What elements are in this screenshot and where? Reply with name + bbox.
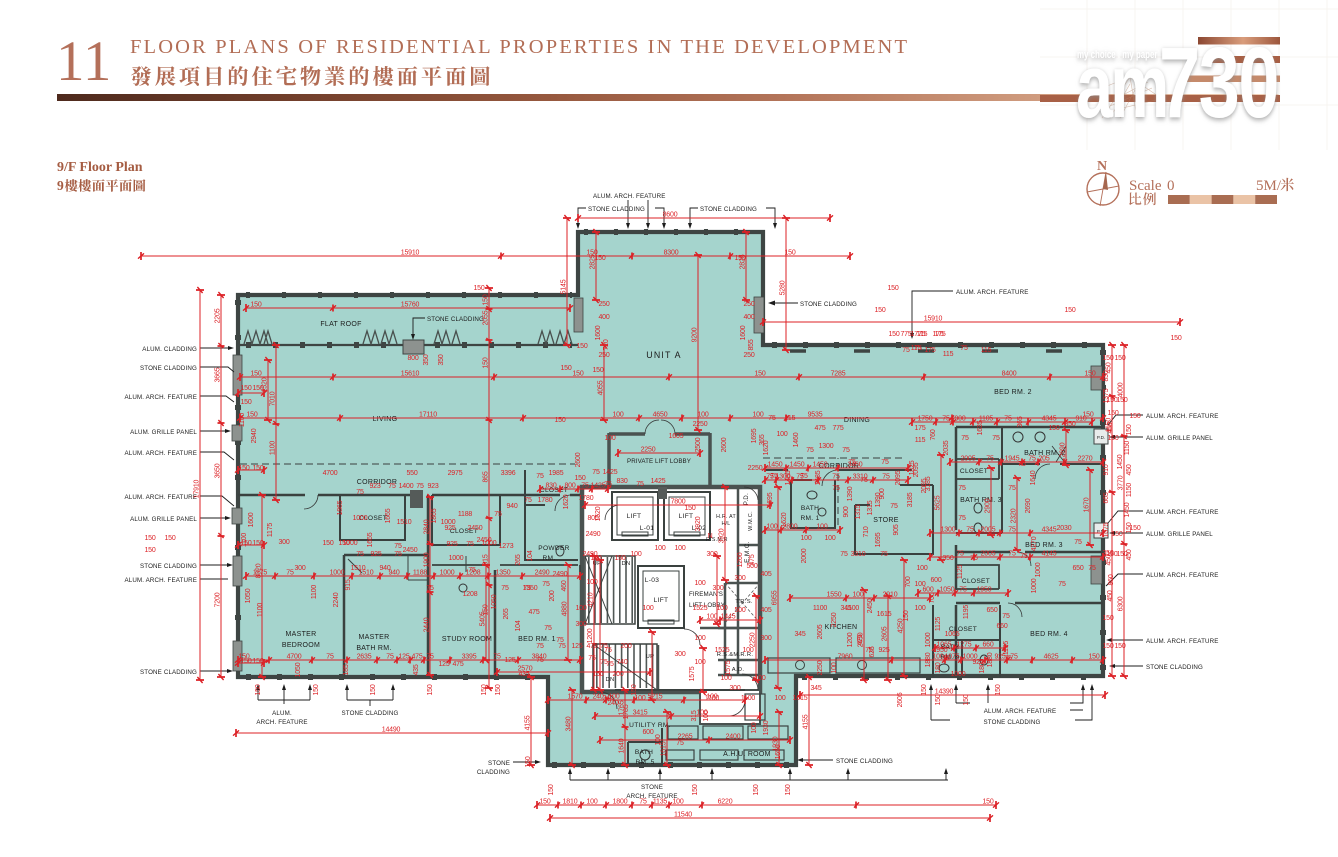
svg-text:LIFT: LIFT [654,597,669,604]
svg-text:75: 75 [581,483,589,490]
svg-text:1300: 1300 [819,443,834,450]
svg-text:150: 150 [784,250,795,257]
svg-text:665: 665 [1103,492,1110,503]
svg-text:100: 100 [642,605,653,612]
svg-text:75: 75 [880,551,888,558]
svg-text:75: 75 [961,435,969,442]
svg-text:150: 150 [1126,424,1133,435]
svg-text:100: 100 [914,581,925,588]
svg-text:ALUM. ARCH. FEATURE: ALUM. ARCH. FEATURE [124,450,197,457]
svg-text:900: 900 [954,416,965,423]
svg-text:150: 150 [370,684,377,695]
svg-text:1200: 1200 [847,632,854,647]
svg-text:2250: 2250 [748,465,763,472]
svg-text:1000: 1000 [441,519,456,526]
svg-text:1510: 1510 [397,519,412,526]
svg-text:75: 75 [882,474,890,481]
svg-text:150: 150 [753,784,760,795]
svg-text:75: 75 [860,477,868,484]
svg-text:1150: 1150 [1126,483,1133,498]
svg-text:5215: 5215 [648,694,663,701]
svg-text:265: 265 [515,554,522,565]
svg-text:450: 450 [1107,590,1114,601]
svg-text:923: 923 [369,483,380,490]
svg-text:BED RM. 2: BED RM. 2 [994,389,1032,396]
svg-text:L-03: L-03 [645,577,659,584]
svg-text:150: 150 [554,417,565,424]
svg-text:W.M.C.: W.M.C. [748,511,754,531]
svg-text:RM.: RM. [543,555,556,562]
svg-text:150: 150 [590,555,601,562]
svg-text:2605: 2605 [897,692,904,707]
svg-text:75: 75 [468,567,476,574]
svg-text:250: 250 [598,301,609,308]
svg-text:100: 100 [612,412,623,419]
svg-text:1525: 1525 [693,605,708,612]
svg-text:1450: 1450 [813,462,828,469]
svg-text:345: 345 [810,685,821,692]
svg-text:475: 475 [749,554,756,565]
svg-text:8400: 8400 [1002,371,1017,378]
svg-text:1065: 1065 [945,631,960,638]
svg-text:865: 865 [483,471,490,482]
svg-text:4700: 4700 [323,470,338,477]
svg-text:1075: 1075 [1103,522,1110,537]
svg-text:1200: 1200 [587,628,594,643]
svg-text:11540: 11540 [674,812,692,819]
svg-text:100: 100 [654,545,665,552]
svg-text:2635: 2635 [357,654,372,661]
svg-text:STONE CLADDING: STONE CLADDING [836,758,893,765]
svg-text:STONE CLADDING: STONE CLADDING [800,301,857,308]
svg-text:900: 900 [843,506,850,517]
svg-text:75: 75 [606,661,614,668]
svg-text:300: 300 [706,551,717,558]
svg-text:450: 450 [1126,464,1133,475]
svg-text:150: 150 [252,385,263,392]
svg-text:100: 100 [694,580,705,587]
svg-text:1188: 1188 [458,511,473,518]
svg-text:350: 350 [942,555,953,562]
svg-text:100: 100 [914,605,925,612]
svg-text:7960: 7960 [838,654,853,661]
svg-text:2005: 2005 [961,456,976,463]
svg-text:75: 75 [416,483,424,490]
svg-text:150: 150 [754,371,765,378]
svg-text:ALUM.: ALUM. [272,710,292,717]
svg-text:150: 150 [525,756,532,767]
svg-text:2690: 2690 [1060,442,1067,457]
svg-text:2975: 2975 [448,470,463,477]
svg-text:1640: 1640 [1030,470,1037,485]
svg-text:150: 150 [935,694,942,705]
svg-text:830: 830 [616,478,627,485]
svg-text:ALUM. GRILLE PANEL: ALUM. GRILLE PANEL [130,516,197,523]
svg-text:ALUM. CLADDING: ALUM. CLADDING [142,346,197,353]
svg-text:P.D.: P.D. [1097,435,1105,440]
svg-text:150: 150 [963,694,970,705]
svg-text:350: 350 [438,354,445,365]
svg-text:925: 925 [972,659,983,666]
svg-text:1100: 1100 [813,605,828,612]
svg-text:2450: 2450 [477,537,492,544]
svg-text:9200: 9200 [692,327,699,342]
svg-text:1865: 1865 [337,500,344,515]
svg-text:75: 75 [958,515,966,522]
svg-text:100: 100 [716,605,727,612]
svg-text:75: 75 [636,481,644,488]
svg-text:75: 75 [1088,565,1096,572]
svg-text:2250: 2250 [831,612,838,627]
svg-text:250: 250 [743,301,754,308]
svg-text:STONE: STONE [488,760,510,767]
svg-text:3310: 3310 [851,551,866,558]
svg-text:150: 150 [1116,551,1127,558]
svg-text:405: 405 [760,571,771,578]
svg-text:1175: 1175 [267,523,274,538]
svg-text:460: 460 [561,580,568,591]
svg-text:75: 75 [832,474,840,481]
svg-text:5405: 5405 [480,611,487,626]
svg-text:923: 923 [427,483,438,490]
svg-text:1300: 1300 [941,527,956,534]
svg-text:150: 150 [631,684,638,695]
svg-text:8320: 8320 [256,563,263,578]
svg-text:475: 475 [452,661,463,668]
svg-text:1275: 1275 [957,642,972,649]
svg-text:1650: 1650 [775,744,782,759]
svg-text:ALUM. ARCH. FEATURE: ALUM. ARCH. FEATURE [1146,413,1219,420]
svg-text:4650: 4650 [653,412,668,419]
svg-text:14490: 14490 [382,727,401,734]
svg-text:75: 75 [958,485,966,492]
svg-text:1485: 1485 [785,470,792,485]
svg-text:100: 100 [655,734,662,745]
svg-text:2490: 2490 [535,570,550,577]
svg-text:ALUM. ARCH. FEATURE: ALUM. ARCH. FEATURE [1146,509,1219,516]
svg-text:75: 75 [1008,527,1016,534]
svg-text:1000: 1000 [353,515,368,522]
svg-text:15610: 15610 [401,371,420,378]
svg-text:100: 100 [674,545,685,552]
svg-text:75: 75 [326,654,334,661]
svg-text:150: 150 [874,307,885,314]
svg-text:CLOSET: CLOSET [960,468,988,475]
svg-text:915: 915 [345,579,352,590]
svg-text:475: 475 [814,425,825,432]
svg-text:1000: 1000 [343,540,358,547]
svg-text:115: 115 [911,345,922,352]
svg-text:ALUM. ARCH. FEATURE: ALUM. ARCH. FEATURE [1146,638,1219,645]
svg-text:1100: 1100 [257,603,264,618]
svg-text:1125: 1125 [935,617,942,632]
svg-text:8600: 8600 [663,212,678,219]
svg-text:100: 100 [586,579,597,586]
svg-text:800: 800 [407,355,418,362]
svg-text:ALUM. ARCH. FEATURE: ALUM. ARCH. FEATURE [124,494,197,501]
svg-text:1000: 1000 [925,632,932,647]
svg-text:H/L: H/L [722,521,731,527]
svg-text:ALUM. ARCH. FEATURE: ALUM. ARCH. FEATURE [984,708,1057,715]
svg-text:75: 75 [286,570,294,577]
svg-text:700: 700 [929,592,936,603]
svg-text:75: 75 [848,459,856,466]
svg-text:5280: 5280 [780,280,787,295]
svg-text:1750: 1750 [918,416,933,423]
svg-text:365: 365 [1017,416,1024,427]
svg-text:15910: 15910 [924,316,943,323]
svg-text:75: 75 [600,643,608,650]
svg-text:75: 75 [536,657,544,664]
svg-text:435: 435 [413,664,420,675]
svg-text:2600: 2600 [575,452,582,467]
svg-text:115: 115 [785,415,796,422]
svg-text:1825: 1825 [909,460,916,475]
svg-text:1208: 1208 [463,591,478,598]
svg-text:POWDER: POWDER [538,545,569,552]
svg-text:150: 150 [481,684,488,695]
svg-text:1450: 1450 [1117,454,1124,469]
svg-text:1450: 1450 [768,462,783,469]
svg-text:150: 150 [574,475,585,482]
svg-text:H.R. AT: H.R. AT [716,514,736,520]
svg-text:1100: 1100 [705,695,720,702]
svg-text:100: 100 [575,605,586,612]
svg-text:300: 300 [294,565,305,572]
svg-text:1100: 1100 [270,441,277,456]
svg-text:5625: 5625 [935,495,942,510]
svg-text:1195: 1195 [963,605,970,620]
svg-text:315: 315 [691,710,698,721]
svg-text:405: 405 [760,607,771,614]
svg-text:N: N [708,533,713,540]
svg-text:75: 75 [840,551,848,558]
svg-text:400: 400 [743,314,754,321]
svg-text:3415: 3415 [633,710,648,717]
svg-text:2240: 2240 [333,592,340,607]
svg-text:1188: 1188 [413,570,428,577]
svg-text:14390: 14390 [935,689,954,696]
svg-text:1425: 1425 [603,469,618,476]
svg-text:150: 150 [1048,425,1059,432]
svg-text:905: 905 [893,524,900,535]
svg-text:710: 710 [863,526,870,537]
svg-text:CLOSET: CLOSET [962,578,990,585]
svg-text:UTILITY RM.: UTILITY RM. [629,722,671,729]
svg-text:1135: 1135 [653,799,668,806]
svg-text:104: 104 [527,550,534,561]
svg-text:75: 75 [1058,581,1066,588]
svg-text:75: 75 [544,625,552,632]
svg-text:BATH: BATH [635,749,653,756]
svg-text:100: 100 [586,799,597,806]
svg-text:STONE CLADDING: STONE CLADDING [140,669,197,676]
svg-text:STONE CLADDING: STONE CLADDING [700,206,757,213]
svg-text:475: 475 [528,609,539,616]
svg-text:2030: 2030 [1057,525,1072,532]
svg-text:150: 150 [903,610,910,621]
svg-text:1100: 1100 [311,585,318,600]
svg-text:2095: 2095 [895,470,902,485]
svg-text:150: 150 [576,343,587,350]
svg-text:N: N [1097,159,1107,174]
svg-text:2605: 2605 [882,626,889,641]
svg-text:2605: 2605 [817,624,824,639]
svg-text:940: 940 [506,503,517,510]
svg-text:150: 150 [238,465,249,472]
svg-text:4345: 4345 [1042,416,1057,423]
svg-text:150: 150 [734,255,745,262]
svg-text:ARCH. FEATURE: ARCH. FEATURE [256,719,307,726]
svg-text:1450: 1450 [790,462,805,469]
svg-text:1800: 1800 [613,799,628,806]
svg-text:1000: 1000 [951,671,966,678]
svg-text:1930: 1930 [763,720,770,735]
svg-text:75: 75 [1004,416,1012,423]
svg-text:1050: 1050 [245,588,252,603]
svg-text:100: 100 [742,647,753,654]
svg-text:925: 925 [370,551,381,558]
svg-text:75: 75 [1020,553,1028,560]
svg-text:75: 75 [639,799,647,806]
svg-text:7010: 7010 [270,391,277,406]
svg-text:STORE: STORE [873,517,899,524]
svg-text:860: 860 [1108,574,1115,585]
svg-text:150: 150 [982,799,993,806]
svg-text:7285: 7285 [831,371,846,378]
svg-text:150: 150 [1107,435,1118,442]
svg-text:75: 75 [842,447,850,454]
svg-text:75: 75 [902,347,910,354]
svg-text:15760: 15760 [401,302,420,309]
svg-text:150: 150 [921,684,928,695]
svg-text:STONE: STONE [641,784,663,791]
svg-text:STONE CLADDING: STONE CLADDING [984,719,1041,726]
svg-text:150: 150 [560,365,571,372]
svg-text:2205: 2205 [215,308,222,323]
svg-text:2500: 2500 [695,437,702,452]
svg-text:1950: 1950 [977,587,992,594]
svg-text:2005: 2005 [981,551,996,558]
svg-text:350: 350 [1064,421,1075,428]
svg-text:100: 100 [852,592,863,599]
svg-text:150: 150 [1129,413,1140,420]
svg-text:915: 915 [483,554,490,565]
svg-text:830: 830 [545,483,556,490]
svg-text:400: 400 [598,314,609,321]
svg-text:3920: 3920 [695,516,702,531]
svg-text:1460: 1460 [793,432,800,447]
svg-text:75: 75 [992,435,1000,442]
svg-text:100: 100 [751,722,758,733]
svg-text:150: 150 [1107,410,1118,417]
svg-text:350: 350 [423,354,430,365]
svg-text:MASTER: MASTER [286,631,317,638]
svg-text:75: 75 [1008,551,1016,558]
svg-text:150: 150 [427,684,434,695]
svg-text:UNIT A: UNIT A [646,350,681,360]
svg-text:475: 475 [411,654,422,661]
svg-text:850: 850 [1103,370,1110,381]
svg-text:75: 75 [536,643,544,650]
svg-text:STONE CLADDING: STONE CLADDING [1146,664,1203,671]
svg-text:125: 125 [504,657,515,664]
svg-text:1780: 1780 [538,497,553,504]
svg-text:150: 150 [1064,307,1075,314]
svg-text:BED RM. 1: BED RM. 1 [518,636,556,643]
svg-text:240: 240 [607,700,618,707]
svg-text:1390: 1390 [847,486,854,501]
svg-text:150: 150 [255,684,262,695]
svg-text:MASTER: MASTER [359,634,390,641]
svg-text:ALUM. ARCH. FEATURE: ALUM. ARCH. FEATURE [124,394,197,401]
svg-text:900: 900 [879,488,886,499]
svg-text:1615: 1615 [877,611,892,618]
svg-text:300: 300 [278,539,289,546]
svg-text:75: 75 [493,654,501,661]
svg-text:1000: 1000 [449,555,464,562]
svg-text:150: 150 [539,799,550,806]
svg-text:150: 150 [1102,615,1113,622]
svg-text:150: 150 [614,555,625,562]
svg-text:75: 75 [394,551,402,558]
svg-text:150: 150 [594,255,605,262]
svg-text:100: 100 [703,710,710,721]
svg-text:1600: 1600 [740,325,747,340]
svg-text:75: 75 [501,585,509,592]
svg-text:150: 150 [1084,371,1095,378]
svg-text:185: 185 [343,664,350,675]
svg-text:75: 75 [956,551,964,558]
svg-text:2910: 2910 [883,592,898,599]
svg-text:75: 75 [386,654,394,661]
svg-text:150: 150 [1116,397,1127,404]
svg-text:175: 175 [934,331,945,338]
svg-text:200: 200 [549,590,556,601]
svg-text:2000: 2000 [801,548,808,563]
svg-text:4155: 4155 [803,714,810,729]
svg-text:150: 150 [473,285,484,292]
svg-text:1600: 1600 [595,325,602,340]
svg-text:75: 75 [890,503,898,510]
svg-text:1450: 1450 [1124,502,1131,517]
svg-text:2450: 2450 [403,547,418,554]
svg-text:1000: 1000 [330,570,345,577]
svg-text:1050: 1050 [491,594,498,609]
svg-text:1000: 1000 [1035,562,1042,577]
svg-text:1695: 1695 [751,428,758,443]
svg-text:150: 150 [887,285,898,292]
svg-text:ALUM. GRILLE PANEL: ALUM. GRILLE PANEL [130,429,197,436]
svg-text:75: 75 [832,485,840,492]
svg-text:1810: 1810 [563,799,578,806]
svg-text:75: 75 [942,416,950,423]
svg-text:1640: 1640 [619,738,626,753]
svg-text:1670: 1670 [1084,497,1091,512]
svg-text:100: 100 [604,435,615,442]
svg-text:100: 100 [824,535,835,542]
svg-text:4700: 4700 [287,654,302,661]
svg-text:1665: 1665 [385,508,392,523]
svg-text:175: 175 [924,347,935,354]
svg-text:100: 100 [706,614,717,621]
svg-text:75: 75 [1002,613,1010,620]
svg-text:200: 200 [620,643,631,650]
svg-text:BATH: BATH [801,505,819,512]
svg-text:2320: 2320 [1011,508,1018,523]
svg-text:4345: 4345 [1042,527,1057,534]
svg-text:1615: 1615 [793,695,808,702]
